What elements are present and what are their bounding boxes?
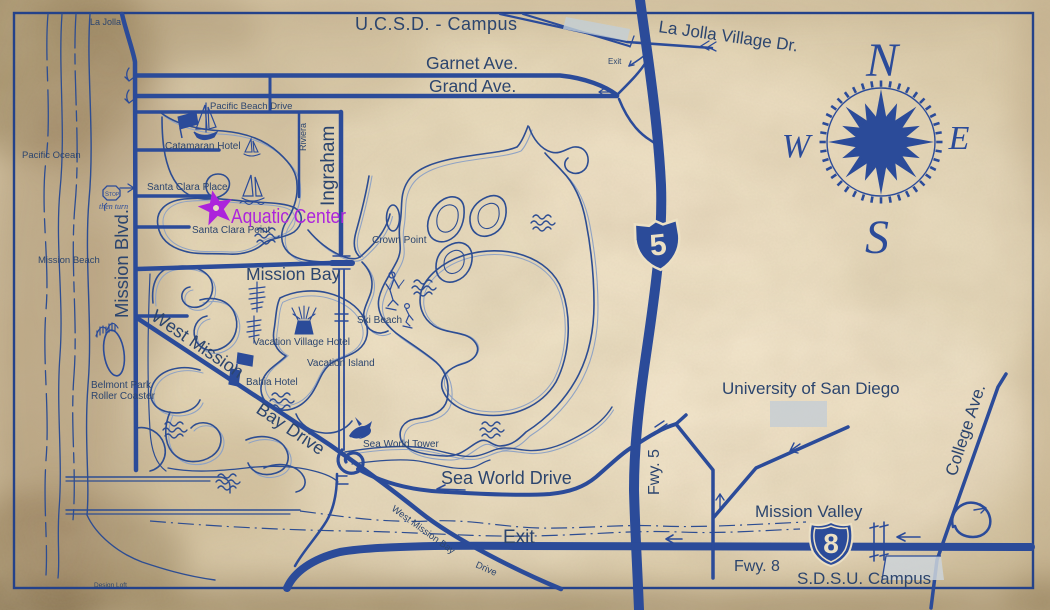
svg-text:Riviera: Riviera [298, 123, 308, 151]
svg-text:University of San Diego: University of San Diego [722, 379, 900, 398]
svg-text:N: N [865, 34, 901, 87]
svg-text:W: W [782, 128, 813, 165]
svg-text:Design Loft: Design Loft [94, 582, 127, 589]
svg-text:Grand Ave.: Grand Ave. [429, 76, 516, 96]
svg-text:Roller Coaster: Roller Coaster [91, 391, 156, 402]
svg-text:Ingraham: Ingraham [318, 126, 339, 206]
svg-text:Mission Valley: Mission Valley [755, 502, 863, 521]
svg-text:Pacific Ocean: Pacific Ocean [22, 150, 81, 161]
svg-text:STOP: STOP [105, 192, 120, 198]
svg-text:Bahia Hotel: Bahia Hotel [246, 377, 298, 388]
svg-text:S: S [865, 211, 889, 264]
svg-text:5: 5 [648, 228, 668, 263]
svg-text:Exit: Exit [503, 527, 535, 548]
svg-text:Belmont Park: Belmont Park [91, 380, 152, 391]
svg-text:La Jolla: La Jolla [90, 17, 121, 27]
svg-text:E: E [948, 120, 970, 157]
svg-text:Garnet Ave.: Garnet Ave. [426, 53, 518, 73]
svg-text:Mission Bay: Mission Bay [246, 264, 341, 284]
svg-text:S.D.S.U. Campus: S.D.S.U. Campus [797, 569, 931, 588]
svg-text:Sea World Drive: Sea World Drive [441, 468, 572, 488]
svg-text:Mission Beach: Mission Beach [38, 255, 100, 266]
svg-text:8: 8 [823, 528, 839, 559]
svg-text:Fwy. 8: Fwy. 8 [734, 558, 780, 575]
svg-text:Crown Point: Crown Point [372, 235, 427, 246]
svg-text:Exit: Exit [608, 57, 622, 66]
svg-text:Sea World Tower: Sea World Tower [363, 439, 439, 450]
svg-text:Pacific Beach Drive: Pacific Beach Drive [210, 101, 292, 112]
svg-text:Ski Beach: Ski Beach [357, 315, 402, 326]
svg-text:Fwy. 5: Fwy. 5 [646, 449, 663, 495]
svg-text:Mission Blvd.: Mission Blvd. [111, 209, 132, 318]
svg-text:Vacation Island: Vacation Island [307, 358, 375, 369]
svg-text:Santa Clara Place: Santa Clara Place [147, 182, 228, 193]
svg-text:Catamaran Hotel: Catamaran Hotel [165, 141, 241, 152]
svg-text:Aquatic Center: Aquatic Center [231, 205, 346, 228]
svg-text:U.C.S.D. - Campus: U.C.S.D. - Campus [355, 14, 518, 34]
svg-text:Vacation Village Hotel: Vacation Village Hotel [253, 337, 350, 348]
